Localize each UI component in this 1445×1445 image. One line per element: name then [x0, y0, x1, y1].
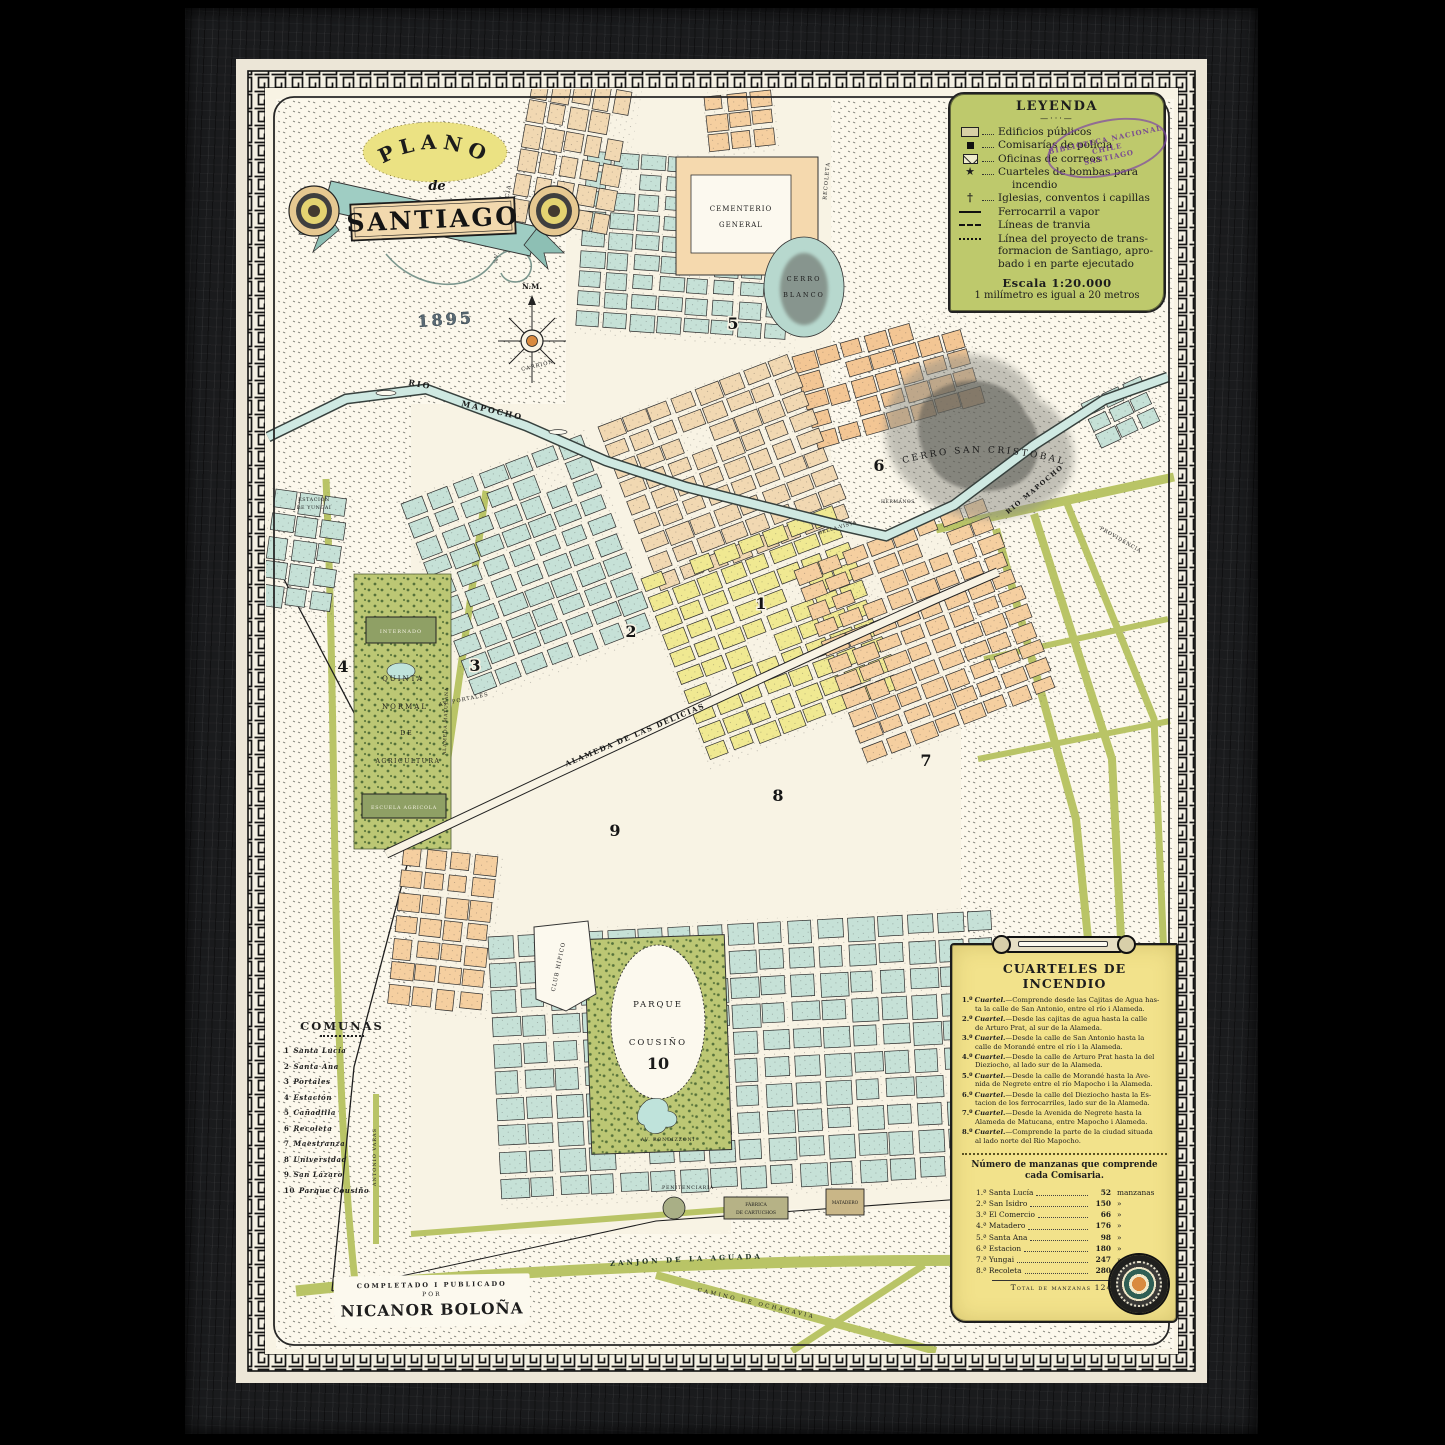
legend-item: Línea del proyecto de trans-formacion de… — [958, 233, 1156, 271]
table-row: 6.ª Estacion180» — [976, 1243, 1163, 1254]
district-5: 5 — [727, 314, 738, 333]
fabrica-label1: FÁBRICA — [745, 1201, 767, 1208]
comuna-item: 9San Lázaro — [284, 1167, 400, 1183]
cuarteles-title: CUARTELES DE INCENDIO — [962, 961, 1167, 991]
comuna-item: 2Santa Ana — [284, 1059, 400, 1075]
rosette-medallion — [1110, 1255, 1168, 1313]
comunas-title: COMUNAS — [284, 1019, 400, 1033]
quinta-label3: DE — [400, 730, 413, 737]
club-hipico — [534, 921, 596, 1011]
district-4: 4 — [337, 657, 348, 676]
map-print: RIO MAPOCHO RIO MAPOCHO CERRO SAN CRISTO… — [236, 59, 1207, 1383]
hermanos-label: HERMANOS — [881, 499, 915, 505]
cuartel-entry: 8.º Cuartel.—Comprende la parte de la ci… — [962, 1128, 1167, 1145]
quinta-label2: NORMAL — [382, 703, 428, 711]
city-grid-patch — [383, 843, 504, 1022]
district-1: 1 — [755, 594, 766, 613]
cerro-blanco — [764, 237, 844, 337]
district-6: 6 — [873, 456, 884, 475]
title-de: de — [428, 179, 445, 194]
tram-line-icon — [958, 219, 982, 231]
parque-number: 10 — [647, 1054, 669, 1073]
cerro-blanco-label2: BLANCO — [783, 291, 825, 299]
author-name: NICANOR BOLOÑA — [338, 1298, 526, 1320]
church-icon: † — [958, 192, 982, 204]
rondizzoni-label: AV. RONDIZZONI — [640, 1137, 695, 1143]
legend-scale: Escala 1:20.000 1 milímetro es igual a 2… — [958, 277, 1156, 302]
manzanas-heading: Número de manzanas que comprende cada Co… — [962, 1153, 1167, 1182]
public-building-icon — [958, 126, 982, 138]
district-8: 8 — [772, 786, 783, 805]
comuna-item: 3Portales — [284, 1074, 400, 1090]
comuna-item: 6Recoleta — [284, 1121, 400, 1137]
police-station-icon — [958, 139, 982, 151]
credit-panel: COMPLETADO I PUBLICADO POR NICANOR BOLOÑ… — [334, 1273, 531, 1328]
comuna-item: 5Cañadilla — [284, 1105, 400, 1121]
yungai-label2: DE YUNGAI — [297, 505, 332, 511]
legend-title: LEYENDA — [958, 101, 1156, 114]
legend-item: Líneas de tranvia — [958, 219, 1156, 232]
table-row: 4.ª Matadero176» — [976, 1220, 1163, 1231]
escuela-label: ESCUELA AGRICOLA — [371, 805, 437, 811]
title-year: 1895 — [417, 308, 475, 331]
block-texture — [383, 843, 504, 1022]
district-9: 9 — [609, 821, 620, 840]
cuartel-entry: 4.º Cuartel.—Desde la calle de Arturo Pr… — [962, 1053, 1167, 1070]
parque-label1: PARQUE — [633, 1000, 683, 1010]
legend-panel: LEYENDA —···— Edificios públicos Comisar… — [948, 92, 1166, 313]
quinta-label1: QUINTA — [382, 675, 424, 683]
comuna-item: 1Santa Lucía — [284, 1043, 400, 1059]
photo-background: RIO MAPOCHO RIO MAPOCHO CERRO SAN CRISTO… — [0, 0, 1445, 1445]
cerro-blanco-label1: CERRO — [787, 275, 822, 283]
comuna-item: 10Parque Cousiño — [284, 1183, 400, 1199]
cartouche-medallion-left — [289, 186, 339, 236]
steam-railway-icon — [958, 206, 982, 218]
cartouche-banner: SANTIAGO — [346, 197, 521, 241]
matadero-label: MATADERO — [832, 1201, 859, 1206]
yungai-label1: ESTACION — [298, 497, 330, 503]
legend-item: Ferrocarril a vapor — [958, 206, 1156, 219]
penitenciaria-label: PENITENCIARIA — [662, 1185, 714, 1191]
scroll-ornament — [1002, 936, 1126, 953]
cementerio-label2: GENERAL — [719, 221, 763, 229]
cuartel-entry: 5.º Cuartel.—Desde la calle de Morandé h… — [962, 1072, 1167, 1089]
table-row: 5.ª Santa Ana98» — [976, 1232, 1163, 1243]
fabrica-label2: DE CARTUCHOS — [736, 1210, 776, 1216]
cuartel-entry: 7.º Cuartel.—Desde la Avenida de Negrete… — [962, 1109, 1167, 1126]
comunas-divider — [320, 1035, 364, 1037]
internado-label: INTERNADO — [380, 629, 422, 635]
cuartel-entry: 3.º Cuartel.—Desde la calle de San Anton… — [962, 1034, 1167, 1051]
cuarteles-panel: CUARTELES DE INCENDIO 1.º Cuartel.—Compr… — [950, 943, 1178, 1323]
comuna-item: 8Universidad — [284, 1152, 400, 1168]
cementerio-label1: CEMENTERIO — [710, 205, 772, 213]
table-row: 1.ª Santa Lucía52manzanas — [976, 1187, 1163, 1198]
cuartel-entry: 1.º Cuartel.—Comprende desde las Cajitas… — [962, 996, 1167, 1013]
legend-item: †Iglesias, conventos i capillas — [958, 192, 1156, 205]
comuna-item: 4Estación — [284, 1090, 400, 1106]
comunas-panel: COMUNAS 1Santa Lucía 2Santa Ana 3Portale… — [284, 1019, 400, 1198]
project-line-icon — [958, 233, 982, 245]
picture-frame: RIO MAPOCHO RIO MAPOCHO CERRO SAN CRISTO… — [185, 8, 1258, 1434]
compass-label: N.M. — [522, 282, 542, 291]
table-row: 3.ª El Comercio66» — [976, 1209, 1163, 1220]
district-7: 7 — [920, 751, 931, 770]
post-office-icon — [958, 153, 982, 165]
parque-label2: COUSIÑO — [629, 1036, 687, 1048]
quinta-label4: AGRICULTURA — [374, 758, 440, 765]
cuartel-entry: 2.º Cuartel.—Desde las cajitas de agua h… — [962, 1015, 1167, 1032]
comuna-item: 7Maestranza — [284, 1136, 400, 1152]
district-2: 2 — [625, 622, 636, 641]
district-3: 3 — [469, 656, 480, 675]
fire-station-icon: ★ — [958, 166, 982, 178]
cuartel-entry: 6.º Cuartel.—Desde la calle del Diezioch… — [962, 1091, 1167, 1108]
table-row: 2.ª San Isidro150» — [976, 1198, 1163, 1209]
cartouche-medallion-right — [529, 186, 579, 236]
